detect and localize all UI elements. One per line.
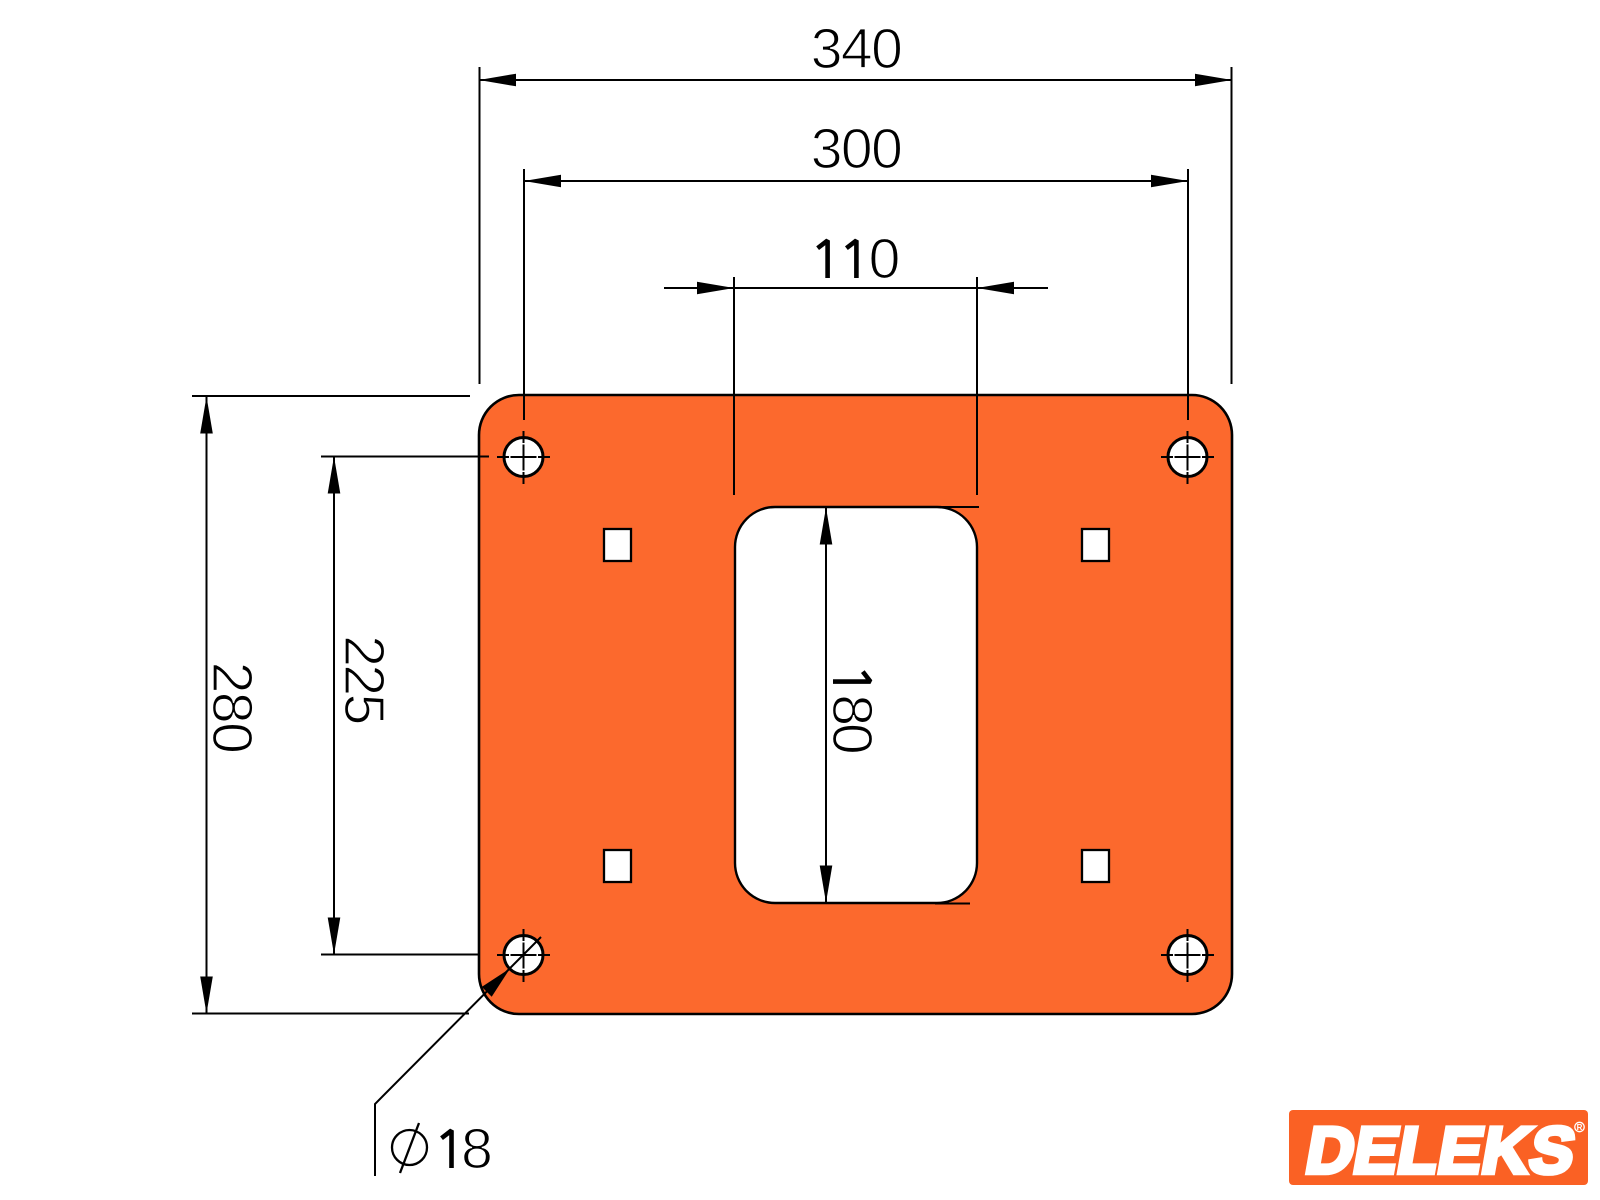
svg-text:280: 280 [200,662,264,753]
svg-text:8: 8 [461,1117,493,1181]
svg-text:300: 300 [811,117,902,181]
svg-text:0: 0 [869,227,901,291]
svg-text:0: 0 [820,723,884,755]
svg-text:340: 340 [811,17,902,81]
svg-text:DELEKS: DELEKS [1300,1114,1581,1187]
svg-text:R: R [1577,1123,1583,1132]
svg-text:225: 225 [332,635,396,723]
svg-text:8: 8 [820,694,884,726]
